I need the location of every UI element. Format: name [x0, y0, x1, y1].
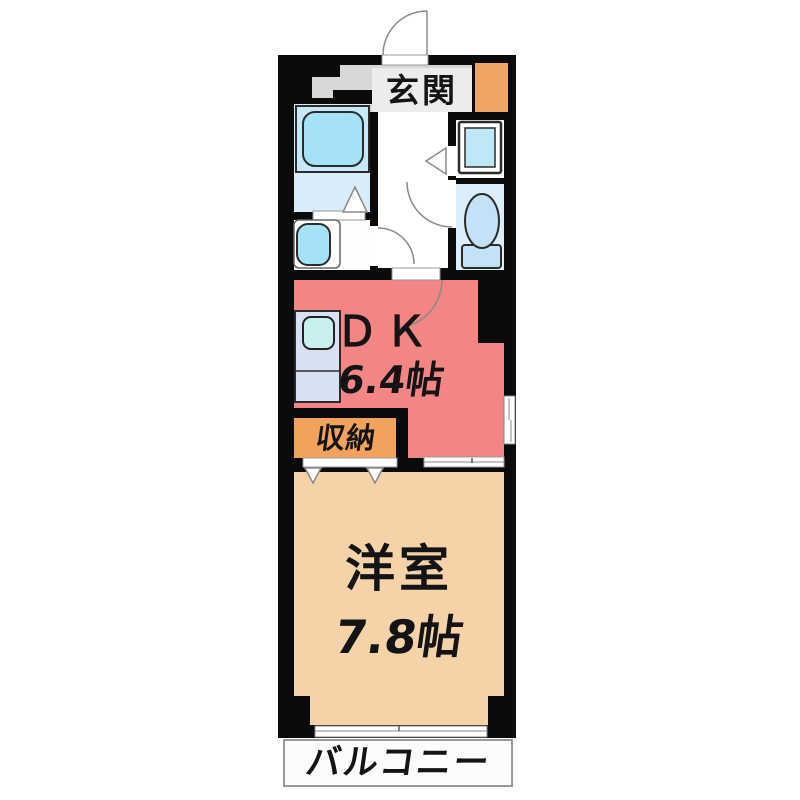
entrance-label-panel: 玄関 — [372, 68, 472, 112]
laundry-floor — [456, 120, 504, 178]
storage-right-wall — [396, 408, 408, 458]
washroom-floor — [294, 220, 370, 270]
corner-pillar-left — [294, 696, 310, 725]
western-room-floor — [294, 472, 504, 725]
western-room-label: 洋室 — [294, 541, 504, 597]
western-room-size-label: 7.8帖 — [290, 610, 508, 664]
storage-top-wall — [294, 408, 408, 418]
balcony-floor: バルコニー — [283, 739, 513, 787]
balcony-label: バルコニー — [303, 746, 492, 781]
entrance-label: 玄関 — [386, 74, 458, 107]
duct-space — [478, 272, 504, 343]
toilet-room-floor — [456, 184, 504, 270]
storage-label: 収納 — [293, 419, 398, 457]
corner-pillar-right — [488, 696, 504, 725]
shoe-cabinet — [475, 63, 508, 112]
dk-label: ＤＫ — [320, 308, 450, 356]
hallway-floor — [378, 112, 448, 268]
bathroom-top-wall — [333, 90, 373, 104]
floor-plan: 玄関 ＤＫ 6.4帖 収納 洋室 7.8帖 バルコニー — [0, 0, 800, 800]
entrance-door-arc-icon — [383, 11, 427, 55]
bathroom-floor — [294, 104, 370, 212]
dk-size-label: 6.4帖 — [313, 357, 469, 403]
